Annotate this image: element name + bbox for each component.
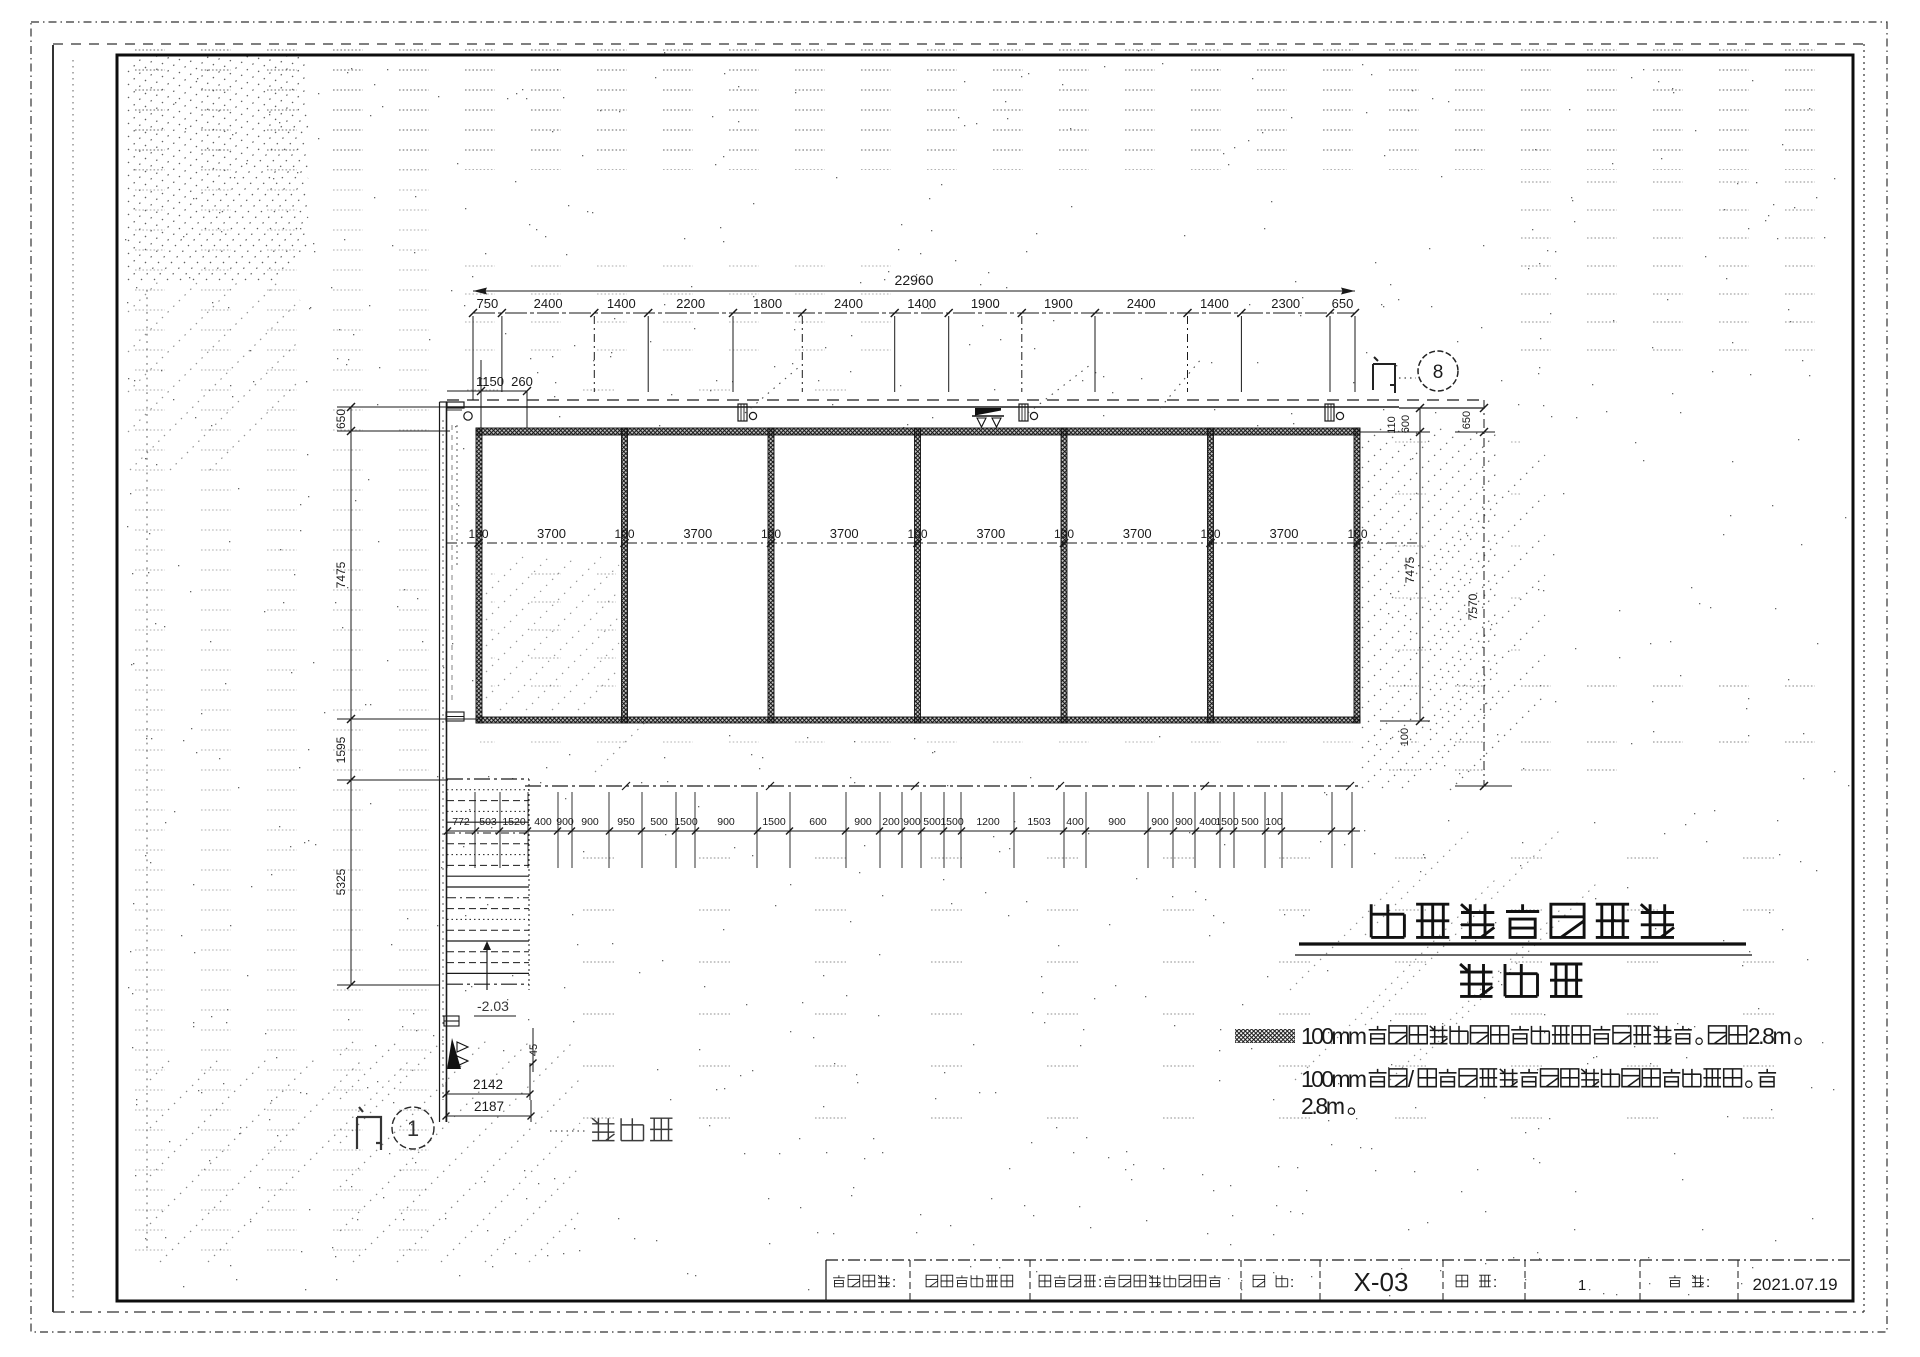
svg-text:100: 100 [761, 527, 781, 541]
svg-text:3700: 3700 [976, 526, 1005, 541]
svg-text:100: 100 [1200, 527, 1220, 541]
svg-text:600: 600 [809, 816, 827, 828]
svg-text:100: 100 [1054, 527, 1074, 541]
svg-text:2300: 2300 [1271, 296, 1300, 311]
svg-text:2021.07.19: 2021.07.19 [1752, 1275, 1837, 1294]
svg-text:2.8m: 2.8m [1748, 1023, 1792, 1049]
svg-text:1400: 1400 [907, 296, 936, 311]
svg-text:1500: 1500 [762, 816, 786, 828]
svg-text:/: / [1408, 1066, 1415, 1092]
svg-text:900: 900 [903, 816, 921, 828]
svg-text:900: 900 [1175, 816, 1193, 828]
svg-text:900: 900 [717, 816, 735, 828]
svg-text:500: 500 [1241, 816, 1259, 828]
svg-text:100: 100 [907, 527, 927, 541]
svg-text:750: 750 [477, 296, 499, 311]
svg-text:45: 45 [528, 1044, 540, 1056]
svg-text:100: 100 [1399, 728, 1411, 746]
svg-text:110: 110 [1386, 416, 1398, 434]
svg-text::: : [1290, 1274, 1294, 1291]
svg-text:100: 100 [614, 527, 634, 541]
svg-text:650: 650 [1332, 296, 1354, 311]
svg-text:1900: 1900 [1044, 296, 1073, 311]
svg-text:X-03: X-03 [1354, 1267, 1409, 1297]
svg-text:2400: 2400 [534, 296, 563, 311]
svg-text:8: 8 [1433, 362, 1444, 383]
svg-text:100: 100 [468, 527, 488, 541]
svg-text:22960: 22960 [895, 272, 934, 288]
svg-text:900: 900 [854, 816, 872, 828]
svg-text:2142: 2142 [473, 1077, 503, 1092]
svg-text:1: 1 [407, 1116, 419, 1141]
svg-text:400: 400 [1066, 816, 1084, 828]
svg-text:1150: 1150 [476, 374, 504, 389]
svg-text:3700: 3700 [537, 526, 566, 541]
svg-text:7570: 7570 [1466, 593, 1480, 620]
svg-text:2187: 2187 [474, 1099, 504, 1114]
svg-text:600: 600 [1400, 415, 1412, 433]
svg-text:500: 500 [650, 816, 668, 828]
svg-text:5325: 5325 [334, 868, 348, 895]
svg-text:2400: 2400 [834, 296, 863, 311]
svg-text:900: 900 [1108, 816, 1126, 828]
svg-text:2.8m: 2.8m [1301, 1093, 1345, 1119]
svg-text:7475: 7475 [334, 561, 348, 588]
svg-text:2400: 2400 [1127, 296, 1156, 311]
svg-text:1400: 1400 [1200, 296, 1229, 311]
svg-text:500: 500 [923, 816, 941, 828]
svg-text:950: 950 [617, 816, 635, 828]
svg-text::: : [1098, 1274, 1102, 1291]
svg-text:1503: 1503 [1027, 816, 1051, 828]
svg-text:1595: 1595 [334, 736, 348, 763]
svg-text:3700: 3700 [830, 526, 859, 541]
svg-text:1800: 1800 [753, 296, 782, 311]
svg-text:900: 900 [581, 816, 599, 828]
svg-text::: : [1493, 1274, 1497, 1291]
svg-text:200: 200 [882, 816, 900, 828]
svg-text:900: 900 [1151, 816, 1169, 828]
svg-text:100: 100 [1265, 816, 1283, 828]
svg-text:1500: 1500 [940, 816, 964, 828]
svg-text:7475: 7475 [1403, 556, 1417, 583]
svg-text:3700: 3700 [683, 526, 712, 541]
svg-text:100mm: 100mm [1301, 1023, 1367, 1049]
svg-text:1: 1 [1578, 1277, 1586, 1294]
svg-text:1400: 1400 [607, 296, 636, 311]
svg-text:400: 400 [1199, 816, 1217, 828]
svg-text:1200: 1200 [976, 816, 1000, 828]
svg-text:1500: 1500 [1215, 816, 1239, 828]
svg-text:-2.03: -2.03 [477, 998, 509, 1014]
svg-text:650: 650 [1461, 411, 1473, 429]
svg-text:2200: 2200 [676, 296, 705, 311]
svg-text:100: 100 [1347, 527, 1367, 541]
svg-text:1900: 1900 [971, 296, 1000, 311]
svg-text:100mm: 100mm [1301, 1066, 1367, 1092]
svg-text:400: 400 [534, 816, 552, 828]
svg-text:260: 260 [511, 374, 533, 389]
svg-text:3700: 3700 [1270, 526, 1299, 541]
svg-text:1500: 1500 [674, 816, 698, 828]
svg-text:3700: 3700 [1123, 526, 1152, 541]
svg-text:900: 900 [556, 816, 574, 828]
svg-text:650: 650 [334, 409, 348, 429]
svg-text::: : [1706, 1274, 1710, 1291]
svg-text::: : [892, 1274, 896, 1291]
